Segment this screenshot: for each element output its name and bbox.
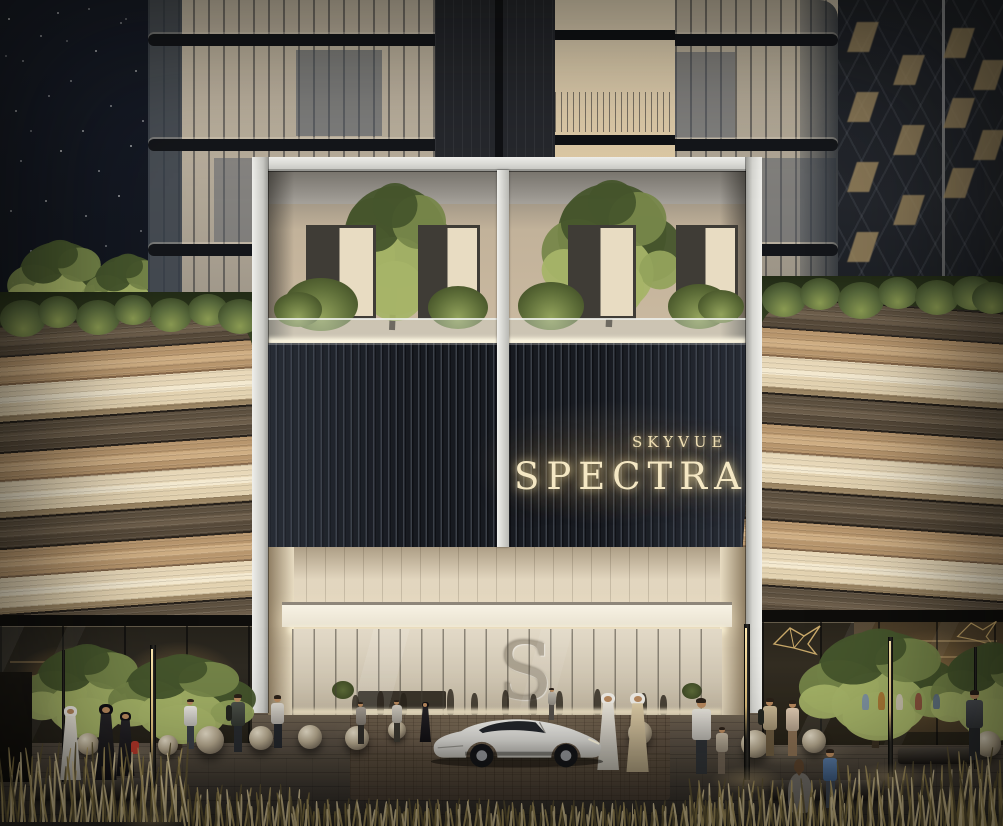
- grass-blade: [175, 784, 177, 822]
- hair: [358, 702, 364, 705]
- grass-blade: [762, 789, 766, 826]
- face: [634, 696, 642, 702]
- hair: [719, 727, 725, 730]
- grass-blade: [742, 789, 744, 826]
- torso: [548, 692, 556, 705]
- store-figure: [915, 693, 922, 710]
- sports-car: [424, 706, 610, 770]
- face: [102, 707, 110, 713]
- pole-light-strip: [889, 641, 891, 742]
- grass-cluster: [295, 796, 500, 826]
- grass-cluster: [0, 738, 188, 822]
- shrub: [838, 282, 884, 319]
- grass-cluster: [688, 775, 846, 826]
- hair: [766, 698, 774, 702]
- legs: [274, 722, 282, 748]
- podium-stripes-wrap: [0, 308, 273, 658]
- frame-left-leg: [252, 157, 268, 713]
- glass-patch: [800, 0, 838, 322]
- hair: [394, 700, 400, 703]
- grass-blade: [752, 803, 754, 826]
- glass-patch: [675, 52, 735, 138]
- robe: [623, 703, 652, 772]
- store-figure: [933, 694, 940, 709]
- bg-tower-window: [893, 125, 925, 155]
- grass-blade: [240, 794, 242, 826]
- grass-cluster: [950, 742, 1003, 826]
- torso: [231, 702, 245, 725]
- torso: [763, 706, 777, 729]
- legs: [394, 721, 400, 742]
- store-figure: [862, 694, 869, 710]
- balcony-rail: [555, 92, 675, 132]
- person-casual: [267, 696, 289, 748]
- grass-blade: [469, 813, 471, 826]
- sign-brand-top: SKYVUE: [632, 433, 727, 451]
- sign-brand-main: SPECTRA: [514, 455, 746, 498]
- architectural-render: SKYVUE SPECTRA: [0, 0, 1003, 826]
- bg-tower-window: [847, 22, 879, 52]
- person-casual: [226, 695, 250, 752]
- stone-sphere: [298, 725, 322, 749]
- bg-tower-window: [973, 60, 1003, 90]
- floor-band: [675, 139, 838, 151]
- grass-blade: [164, 761, 168, 822]
- backpack: [226, 705, 232, 721]
- glass-patch: [148, 0, 182, 322]
- podium-ridges: [0, 308, 273, 658]
- grass-blade: [564, 814, 566, 826]
- entrance-canopy: [282, 602, 732, 627]
- legs: [718, 751, 725, 775]
- frame-center-mullion: [497, 170, 509, 547]
- torso: [966, 700, 983, 728]
- balcony-slab: [555, 135, 675, 145]
- torso: [786, 708, 800, 731]
- hair: [970, 690, 979, 694]
- grass-blade: [675, 814, 677, 826]
- grass-blade: [583, 808, 585, 826]
- shrub: [150, 298, 192, 332]
- bg-tower-window: [893, 195, 925, 225]
- store-figure: [896, 694, 903, 710]
- person-casual: [758, 699, 782, 756]
- backpack: [758, 709, 764, 725]
- shrub: [38, 296, 78, 328]
- glass-patch: [296, 50, 382, 136]
- store-figure: [878, 692, 885, 710]
- bg-tower-window: [943, 98, 975, 128]
- torso: [692, 709, 711, 740]
- grass-cluster: [186, 782, 304, 826]
- torso: [392, 705, 403, 722]
- grass-blade: [523, 809, 526, 826]
- bg-tower-window: [847, 92, 879, 122]
- torso: [356, 707, 367, 724]
- floor-band: [675, 34, 838, 46]
- person-child: [712, 727, 732, 774]
- entrance-lobby-block: S: [268, 547, 746, 715]
- balcony-slab: [555, 30, 675, 40]
- floor-band: [148, 34, 435, 46]
- grass-blade: [369, 804, 372, 826]
- grass-blade: [773, 803, 777, 826]
- legs: [696, 737, 707, 775]
- torso: [271, 703, 284, 724]
- shrub: [800, 278, 840, 310]
- podium-stripes-wrap: [736, 295, 1003, 654]
- person-kandura: [621, 693, 654, 772]
- grass-blade: [260, 794, 263, 826]
- grass-blade: [317, 808, 321, 826]
- core-seam: [495, 0, 503, 172]
- torso: [716, 733, 728, 752]
- hair: [187, 699, 194, 702]
- legs: [234, 724, 243, 753]
- person-casual: [352, 702, 370, 744]
- legs: [766, 728, 775, 757]
- building-sign: SKYVUE SPECTRA: [514, 431, 746, 531]
- hair: [234, 694, 242, 698]
- hair: [274, 695, 281, 698]
- bg-tower-window: [847, 232, 879, 262]
- tower-core-lit: [555, 0, 675, 172]
- hair: [549, 688, 553, 690]
- grass-blade: [575, 806, 578, 826]
- legs: [788, 729, 796, 757]
- frame-top-bar: [252, 157, 762, 171]
- face: [604, 696, 612, 702]
- bg-tower-window: [847, 162, 879, 192]
- grass-blade: [359, 812, 361, 826]
- bg-tower-window: [973, 130, 1003, 160]
- grass-blade: [891, 777, 894, 826]
- grass-blade: [250, 806, 252, 826]
- pole-light-strip: [745, 628, 747, 740]
- bg-tower-window: [943, 28, 975, 58]
- hair: [789, 700, 796, 704]
- shrub: [878, 277, 918, 309]
- legs: [358, 723, 364, 744]
- podium-ridges: [736, 295, 1003, 654]
- hair: [696, 698, 706, 703]
- shrub: [762, 282, 806, 317]
- grass-blade: [613, 809, 615, 826]
- hair: [826, 749, 834, 753]
- bg-tower-window: [893, 55, 925, 85]
- shrub: [76, 300, 120, 335]
- grass-blade: [271, 806, 274, 826]
- person-casual: [388, 700, 406, 742]
- bg-tower-window: [943, 168, 975, 198]
- torso: [184, 706, 197, 727]
- floor-band: [148, 139, 435, 151]
- stone-wall: [268, 547, 746, 602]
- person-casual: [781, 701, 804, 756]
